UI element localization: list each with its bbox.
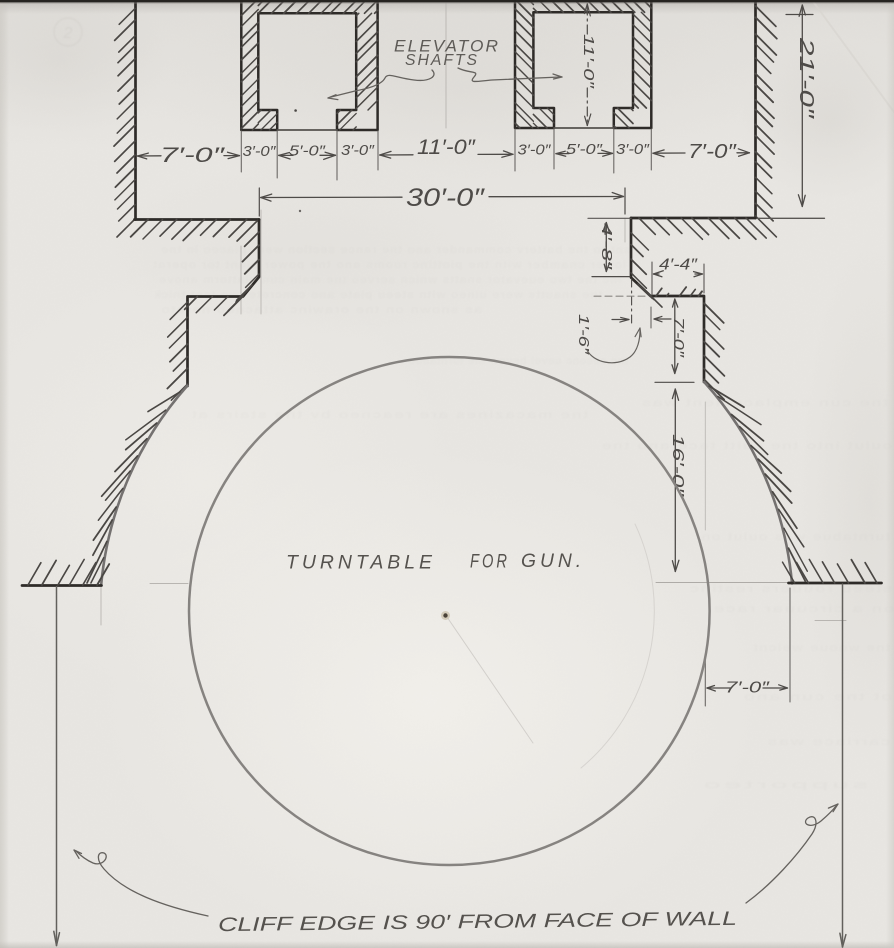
svg-text:inc tne two euevator snatts wn: inc tne two euevator snatts wnicn serveo…	[158, 275, 621, 286]
svg-text:7′-0″: 7′-0″	[160, 144, 226, 167]
svg-text:30′-0″: 30′-0″	[406, 184, 485, 212]
svg-text:5′-0″: 5′-0″	[289, 144, 326, 160]
svg-text:tne cun emplacement was: tne cun emplacement was	[640, 398, 888, 409]
svg-text:tne wnoue weicnt: tne wnoue weicnt	[752, 643, 890, 654]
svg-text:3′-0″: 3′-0″	[341, 143, 375, 159]
svg-text:3′-0″: 3′-0″	[616, 142, 650, 158]
svg-text:7′-0″: 7′-0″	[725, 680, 771, 697]
svg-text:1′-6″: 1′-6″	[575, 314, 592, 355]
svg-text:2: 2	[63, 25, 73, 42]
svg-text:5′-0″: 5′-0″	[566, 142, 603, 158]
svg-text:tne macazines are reacneo bv t: tne macazines are reacneo bv tne stairs …	[190, 410, 588, 421]
svg-text:21′-0″: 21′-0″	[795, 36, 817, 119]
svg-text:as snown on tne orawinc attacn: as snown on tne orawinc attacneo nereto	[160, 305, 482, 316]
svg-text:FOR: FOR	[470, 551, 510, 573]
svg-text:7′-0″: 7′-0″	[688, 141, 737, 163]
svg-text:3′-0″: 3′-0″	[518, 143, 552, 159]
svg-text:11′-0″: 11′-0″	[580, 34, 597, 89]
svg-text:on a circuuar race: on a circuuar race	[712, 604, 894, 615]
svg-text:GUN.: GUN.	[521, 550, 585, 572]
svg-text:SHAFTS: SHAFTS	[405, 52, 479, 69]
svg-text:lower cnamber witn tne piottin: lower cnamber witn tne piottinc rooms an…	[152, 260, 626, 271]
svg-text:carriace was: carriace was	[766, 737, 890, 748]
svg-text:4′-4″: 4′-4″	[659, 257, 698, 274]
svg-text:snt to tne batterv commander a: snt to tne batterv commander ano tne ran…	[160, 245, 630, 256]
svg-text:7′-0″: 7′-0″	[670, 317, 686, 358]
svg-text:TURNTABLE: TURNTABLE	[286, 552, 436, 574]
svg-text:11′-0″: 11′-0″	[417, 136, 477, 159]
svg-text:3′-0″: 3′-0″	[243, 144, 277, 160]
svg-text:4′-8″: 4′-8″	[598, 223, 615, 270]
